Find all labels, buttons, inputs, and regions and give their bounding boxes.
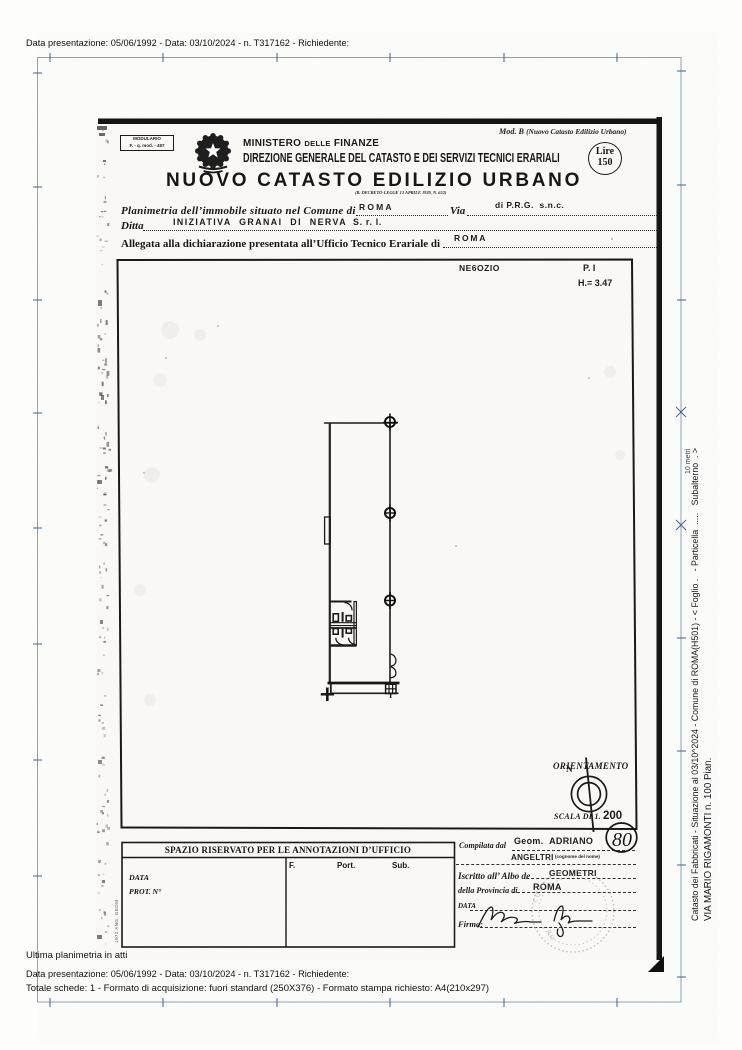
svg-text:80: 80 (612, 829, 632, 851)
